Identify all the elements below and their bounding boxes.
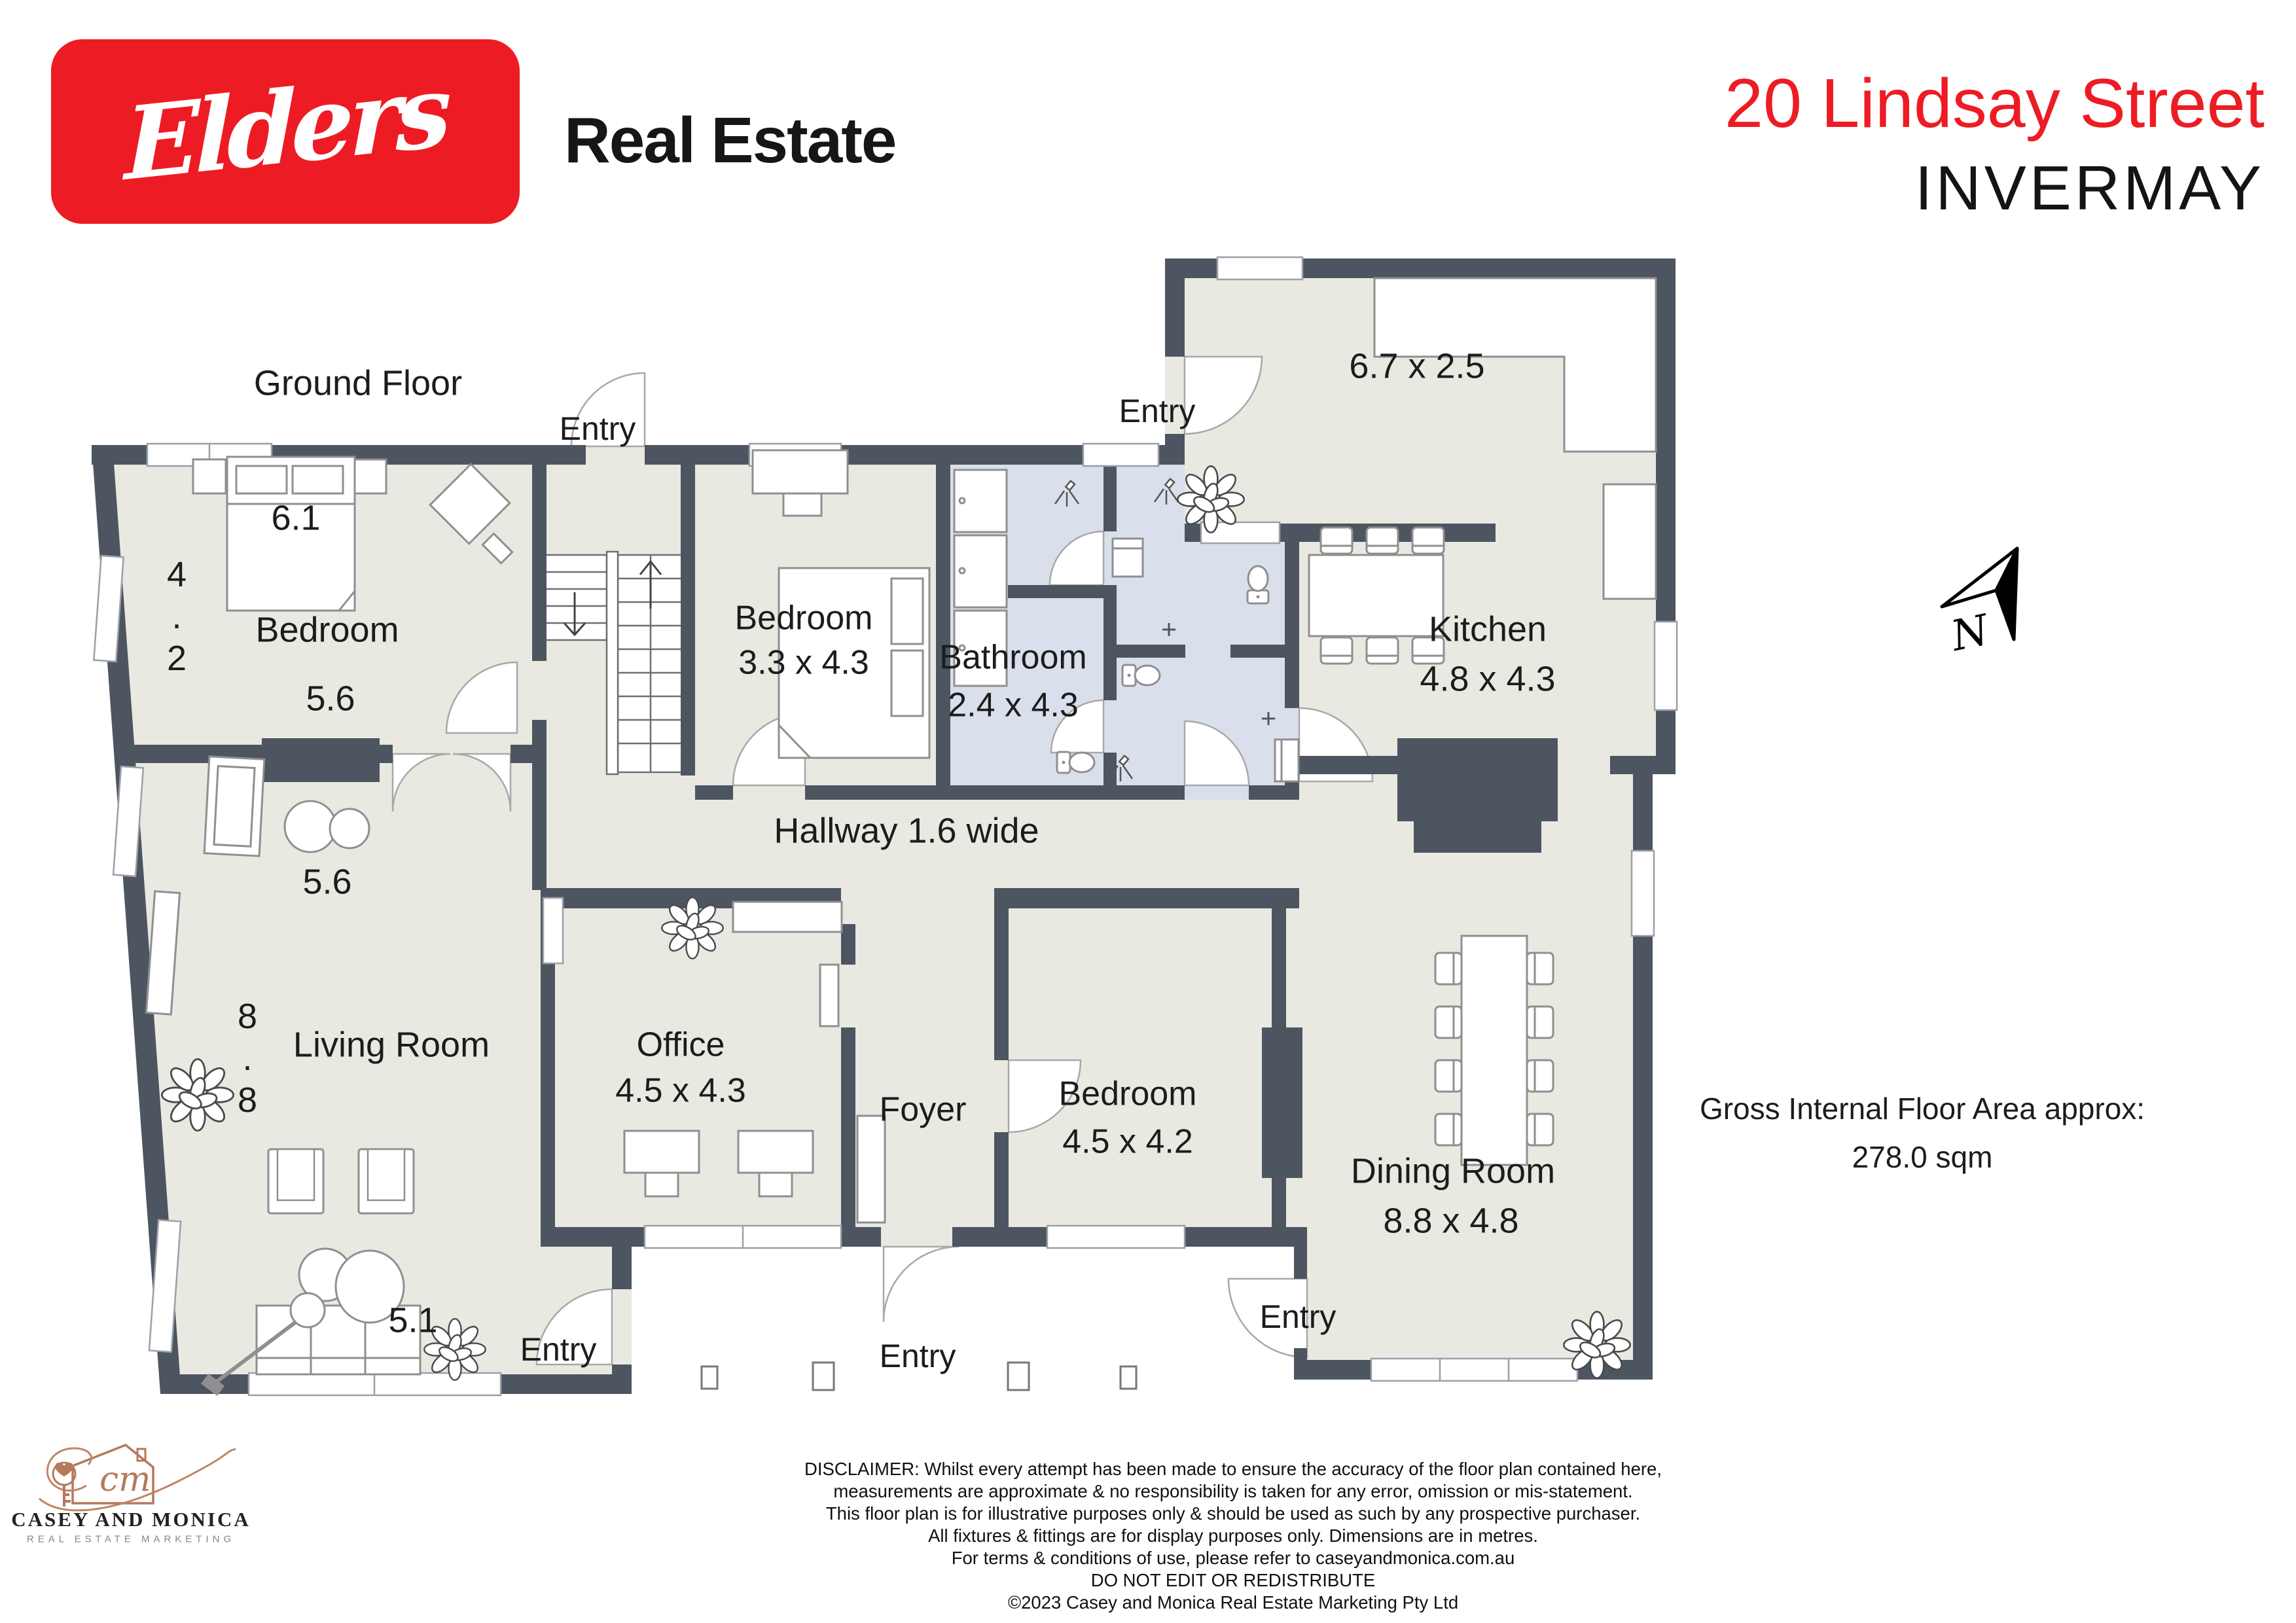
floor-title: Ground Floor bbox=[254, 365, 462, 402]
bathroom-dims: 2.4 x 4.3 bbox=[948, 688, 1078, 724]
entry-label-dining: Entry bbox=[1260, 1300, 1336, 1334]
disclaimer-line: ©2023 Casey and Monica Real Estate Marke… bbox=[804, 1592, 1662, 1614]
hallway-label: Hallway 1.6 wide bbox=[774, 813, 1039, 850]
elders-logo: Elders bbox=[51, 39, 520, 224]
address-street: 20 Lindsay Street bbox=[1725, 64, 2265, 143]
living-left-dim: 8 . 8 bbox=[238, 995, 257, 1121]
bedroom1-depth-dim: 4 . 2 bbox=[167, 554, 187, 679]
property-address: 20 Lindsay Street INVERMAY bbox=[1725, 64, 2265, 224]
bedroom3-dims: 4.5 x 4.2 bbox=[1062, 1124, 1193, 1160]
bathroom-label: Bathroom bbox=[939, 640, 1086, 676]
bedroom1-width-dim: 6.1 bbox=[271, 500, 320, 537]
svg-text:cm: cm bbox=[99, 1460, 151, 1499]
brand-suffix: Real Estate bbox=[564, 103, 895, 177]
bedroom1-inner-width-dim: 5.6 bbox=[306, 681, 355, 718]
disclaimer-line: For terms & conditions of use, please re… bbox=[804, 1547, 1662, 1569]
kitchen-dims: 4.8 x 4.3 bbox=[1420, 661, 1555, 698]
agency-logo-icon: cm bbox=[39, 1445, 236, 1510]
office-label: Office bbox=[637, 1027, 725, 1063]
dining-label: Dining Room bbox=[1351, 1153, 1555, 1190]
floorplan-page: cm Elders Real Estate 20 Lindsay Street … bbox=[0, 0, 2296, 1623]
laundry-dims: 6.7 x 2.5 bbox=[1349, 348, 1484, 385]
disclaimer-line: measurements are approximate & no respon… bbox=[804, 1480, 1662, 1503]
address-suburb: INVERMAY bbox=[1725, 152, 2265, 224]
agency-tagline: REAL ESTATE MARKETING bbox=[27, 1534, 235, 1545]
elders-logo-script: Elders bbox=[124, 51, 446, 212]
disclaimer-text: DISCLAIMER: Whilst every attempt has bee… bbox=[804, 1458, 1662, 1614]
gross-area-line2: 278.0 sqm bbox=[1852, 1141, 1993, 1173]
dining-dims: 8.8 x 4.8 bbox=[1383, 1203, 1518, 1240]
entry-label-foyer: Entry bbox=[880, 1339, 956, 1374]
bedroom2-dims: 3.3 x 4.3 bbox=[738, 645, 869, 681]
bedroom1-label: Bedroom bbox=[255, 612, 399, 649]
agency-name: CASEY AND MONICA bbox=[11, 1508, 250, 1531]
foyer-label: Foyer bbox=[880, 1092, 967, 1128]
disclaimer-line: All fixtures & fittings are for display … bbox=[804, 1525, 1662, 1547]
entry-label-living: Entry bbox=[520, 1332, 597, 1367]
disclaimer-line: This floor plan is for illustrative purp… bbox=[804, 1503, 1662, 1525]
entry-label-top: Entry bbox=[560, 412, 636, 446]
bedroom3-label: Bedroom bbox=[1059, 1077, 1197, 1113]
living-bottom-dim: 5.1 bbox=[388, 1302, 437, 1340]
gross-area-line1: Gross Internal Floor Area approx: bbox=[1700, 1093, 2145, 1124]
living-top-dim: 5.6 bbox=[302, 864, 351, 901]
disclaimer-line: DO NOT EDIT OR REDISTRIBUTE bbox=[804, 1569, 1662, 1592]
living-label: Living Room bbox=[293, 1027, 490, 1064]
floorplan-drawing: cm bbox=[0, 0, 2296, 1623]
entry-label-wing: Entry bbox=[1119, 394, 1196, 429]
bedroom2-label: Bedroom bbox=[735, 601, 873, 637]
disclaimer-line: DISCLAIMER: Whilst every attempt has bee… bbox=[804, 1458, 1662, 1480]
kitchen-label: Kitchen bbox=[1429, 611, 1547, 649]
office-dims: 4.5 x 4.3 bbox=[615, 1073, 745, 1109]
